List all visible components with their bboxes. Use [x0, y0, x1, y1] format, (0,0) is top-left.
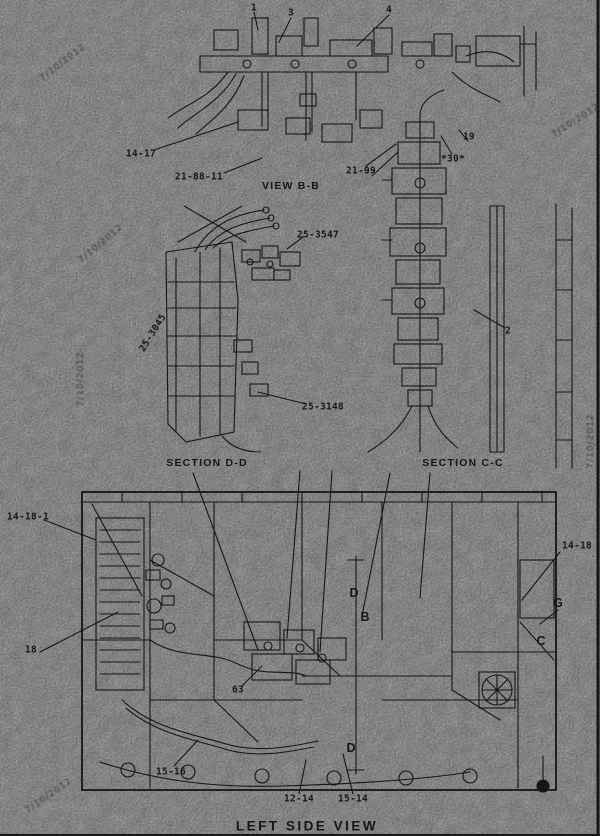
caption-section-dd: SECTION D-D	[166, 457, 247, 469]
scanned-diagram-page: 13414-1721-88-11VIEW B-B21-9919*30*25-35…	[0, 0, 600, 836]
section-cc-drawing	[368, 90, 572, 468]
callout-12-14: 12-14	[284, 794, 314, 805]
callout-4: 4	[386, 5, 392, 16]
callout-63: 63	[232, 685, 244, 696]
left-side-view-drawing	[40, 471, 560, 794]
section-dd-drawing	[166, 206, 306, 452]
watermark-top-left: 7/10/2012	[38, 42, 88, 84]
title-left-side-view: LEFT SIDE VIEW	[236, 819, 378, 834]
callout-18: 18	[25, 645, 37, 656]
callout-14-17: 14-17	[126, 149, 156, 160]
callout-25-3045: 25-3045	[137, 312, 169, 354]
letter-c: C	[536, 634, 545, 648]
watermark-right-vertical: 7/10/2012	[586, 413, 596, 468]
callout-21-99: 21-99	[346, 166, 376, 177]
letter-d-upper: D	[349, 586, 358, 600]
callout-2: 2	[505, 326, 511, 337]
callout-30: *30*	[441, 154, 465, 165]
scan-border	[0, 0, 600, 836]
callout-15-16: 15-16	[156, 767, 186, 778]
callout-21-88-11: 21-88-11	[175, 172, 223, 183]
callout-15-14: 15-14	[338, 794, 368, 805]
scan-noise-overlay	[0, 0, 600, 836]
callout-14-18-1: 14-18-1	[7, 512, 49, 523]
watermark-top-right: 7/10/2012	[550, 102, 600, 140]
watermark-bottom-left: 7/10/2012	[24, 776, 75, 816]
callout-3: 3	[288, 8, 294, 19]
watermark-left-vertical: 7/10/2012	[76, 351, 86, 406]
watermark-mid-left: 7/10/2012	[77, 222, 126, 265]
view-bb-drawing	[154, 12, 536, 173]
caption-section-cc: SECTION C-C	[422, 457, 503, 469]
letter-g: G	[553, 596, 563, 610]
callout-25-3547: 25-3547	[297, 230, 339, 241]
caption-view-bb: VIEW B-B	[262, 180, 320, 192]
callout-14-18: 14-18	[562, 541, 592, 552]
diagram-artwork	[0, 0, 600, 836]
callout-19: 19	[463, 132, 475, 143]
letter-d-lower: D	[346, 741, 355, 755]
callout-1: 1	[251, 3, 257, 14]
callout-25-3148: 25-3148	[302, 402, 344, 413]
letter-b-upper: B	[360, 610, 369, 624]
